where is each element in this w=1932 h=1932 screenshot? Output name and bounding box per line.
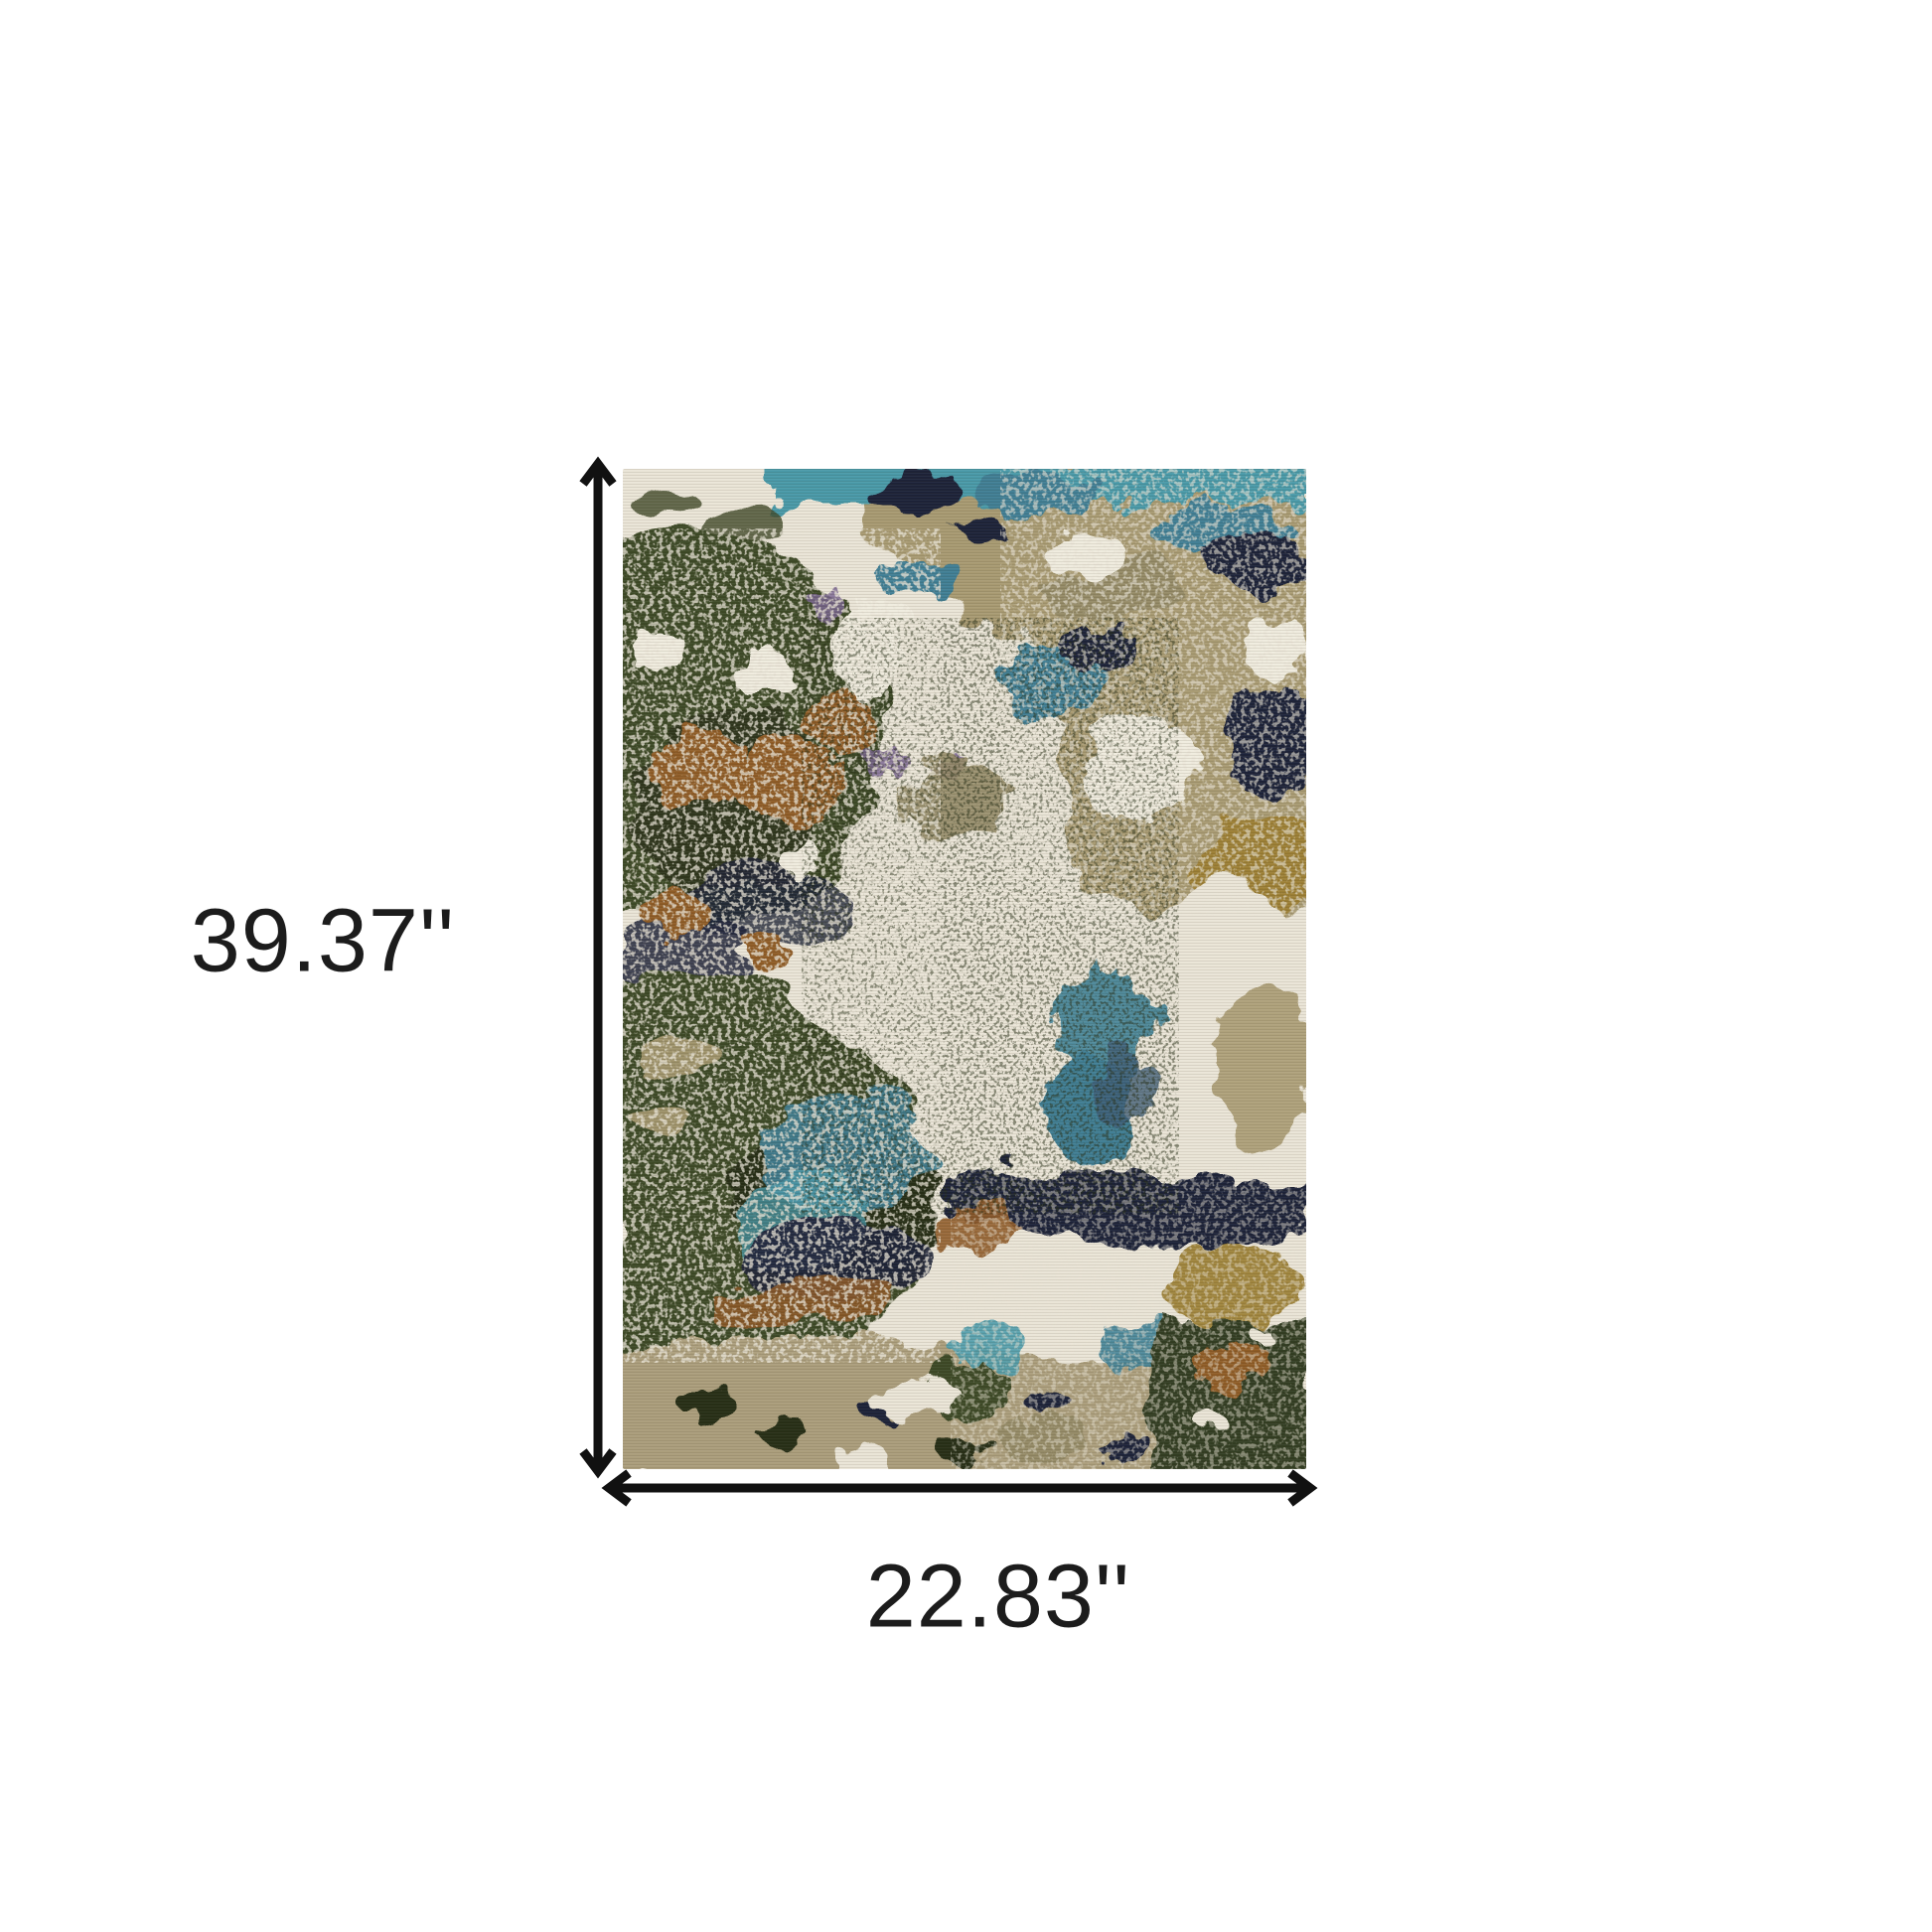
height-dimension-arrow [578,456,618,1479]
width-dimension-label: 22.83'' [866,1547,1131,1649]
height-dimension-label: 39.37'' [191,891,456,993]
dimension-diagram: 39.37'' 22.83'' [0,0,1932,1932]
rug-art-svg [623,469,1306,1469]
width-dimension-arrow [601,1468,1318,1508]
rug-image [623,469,1306,1469]
